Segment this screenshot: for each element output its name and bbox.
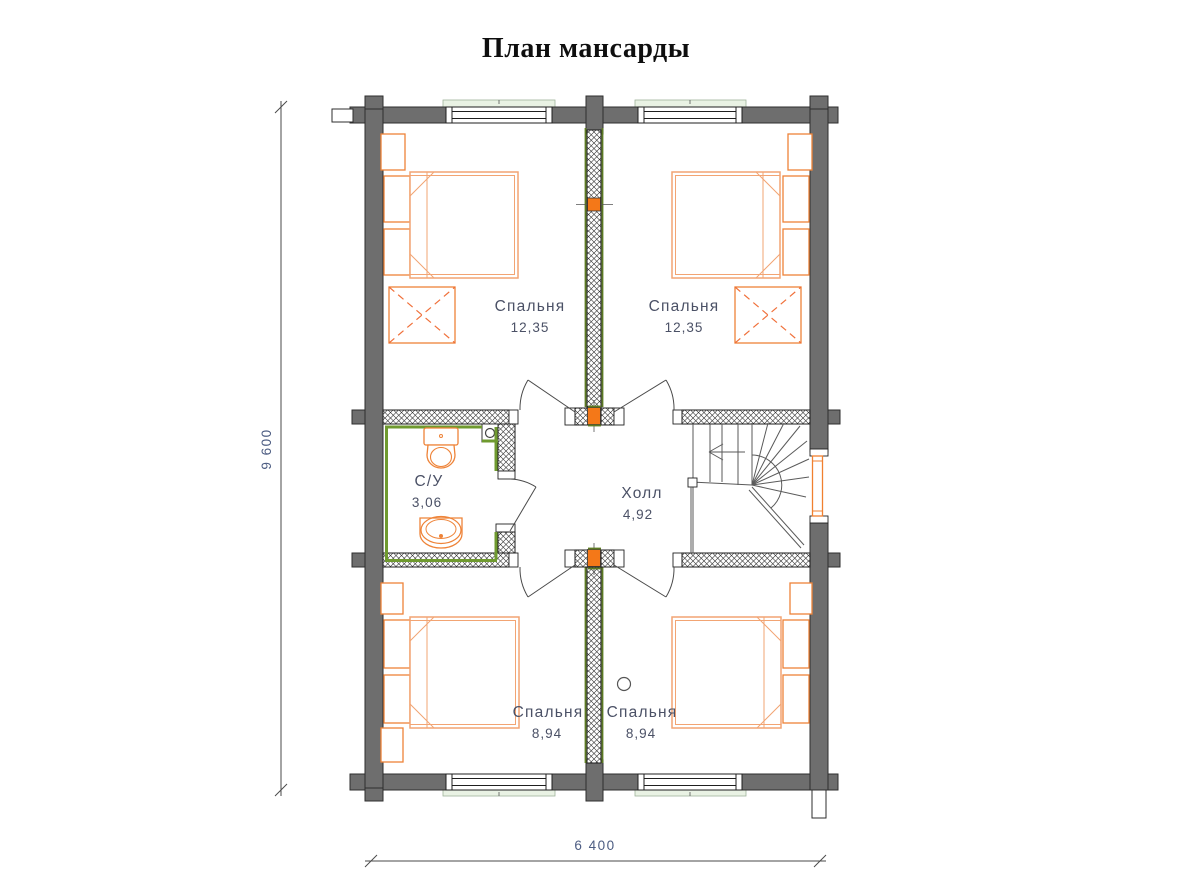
- room-area-bedroom-top-right: 12,35: [665, 320, 704, 335]
- cabinet: [381, 728, 403, 762]
- stair-winders: [749, 423, 809, 548]
- double-bed: [672, 172, 780, 278]
- staircase: [688, 423, 809, 553]
- window-bottom-1: [446, 774, 552, 790]
- cabinet: [381, 134, 405, 170]
- floor-plan-page: План мансарды: [0, 0, 1200, 893]
- door-bedroom-top-left: [520, 380, 575, 412]
- room-area-bedroom-top-left: 12,35: [511, 320, 550, 335]
- log-end-top-left: [332, 109, 353, 122]
- nightstand: [384, 176, 410, 222]
- room-label-bedroom-top-right: Спальня: [649, 298, 720, 315]
- window-bottom-2: [638, 774, 742, 790]
- log-end-bottom-right: [812, 790, 826, 818]
- door-bedroom-bottom-left: [520, 565, 575, 597]
- furniture-bedroom-bottom-left: [381, 583, 519, 762]
- post-hall-bottom: [588, 550, 601, 567]
- door-bedroom-bottom-right: [614, 565, 674, 597]
- floor-plan-drawing: План мансарды: [0, 0, 1200, 893]
- door-bathroom: [510, 479, 536, 531]
- right-wall-upper: [810, 107, 828, 452]
- nightstand: [783, 620, 809, 668]
- dimension-width-text: 6 400: [574, 838, 615, 853]
- room-label-bedroom-bottom-left: Спальня: [513, 704, 584, 721]
- window-top-1: [446, 107, 552, 123]
- chimney-pipe: [618, 678, 631, 691]
- nightstand: [783, 176, 809, 222]
- cabinet: [381, 583, 403, 614]
- door-bedroom-top-right: [614, 380, 674, 412]
- room-label-hall: Холл: [621, 485, 662, 502]
- dimension-height: 9 600: [259, 101, 287, 796]
- window-top-2: [638, 107, 742, 123]
- cabinet: [788, 134, 812, 170]
- nightstand: [384, 229, 410, 275]
- vent-pipe: [486, 429, 495, 438]
- post-partition-mid: [588, 198, 601, 211]
- room-label-bathroom: С/У: [415, 473, 444, 490]
- room-label-bedroom-bottom-right: Спальня: [607, 704, 678, 721]
- nightstand: [384, 620, 410, 668]
- wardrobe: [735, 287, 801, 343]
- nightstand: [783, 229, 809, 275]
- nightstand: [384, 675, 410, 723]
- nightstand: [783, 675, 809, 723]
- post-hall-top: [588, 408, 601, 425]
- double-bed: [410, 617, 519, 728]
- room-label-bedroom-top-left: Спальня: [495, 298, 566, 315]
- left-wall: [365, 107, 383, 790]
- room-area-bedroom-bottom-left: 8,94: [532, 726, 562, 741]
- dimension-width: 6 400: [365, 838, 826, 867]
- double-bed: [410, 172, 518, 278]
- room-area-bedroom-bottom-right: 8,94: [626, 726, 656, 741]
- cabinet: [790, 583, 812, 614]
- double-bed: [672, 617, 781, 728]
- page-title: План мансарды: [482, 33, 690, 64]
- room-area-bathroom: 3,06: [412, 495, 442, 510]
- washbasin: [420, 517, 462, 549]
- toilet: [424, 428, 458, 468]
- stair-window-right: [810, 449, 828, 523]
- wardrobe: [389, 287, 455, 343]
- partition-lower: [587, 567, 601, 763]
- dimension-height-text: 9 600: [259, 428, 274, 469]
- partition-upper: [587, 130, 601, 407]
- right-wall-lower: [810, 523, 828, 790]
- room-area-hall: 4,92: [623, 507, 653, 522]
